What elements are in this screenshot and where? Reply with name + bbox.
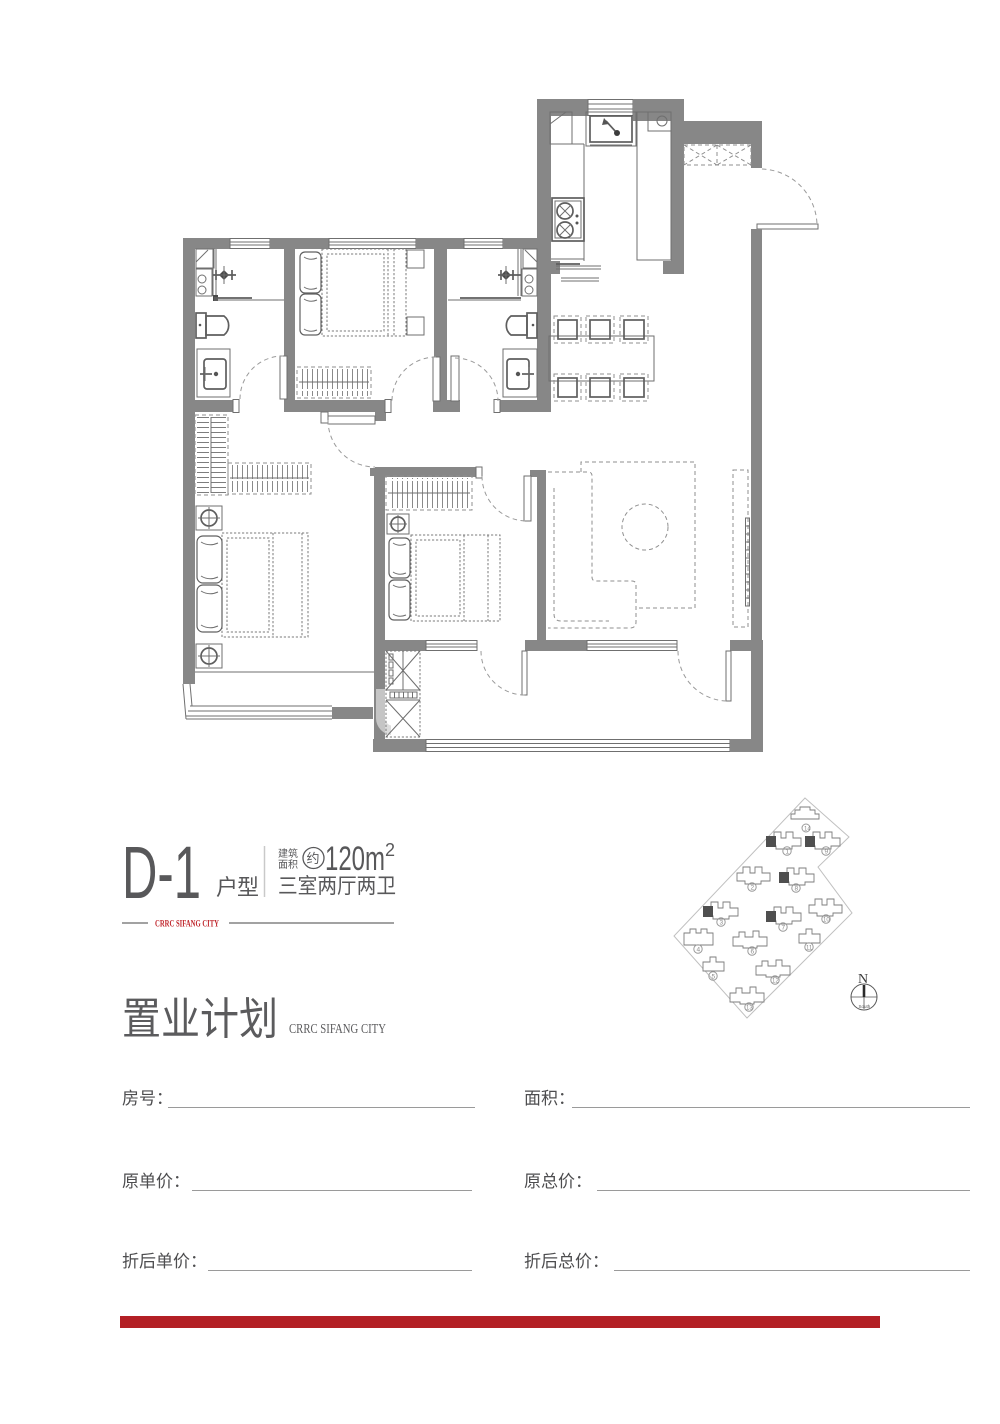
svg-text:120m: 120m xyxy=(325,840,385,878)
svg-text:D-1: D-1 xyxy=(122,831,201,914)
svg-text:1: 1 xyxy=(786,849,790,856)
svg-text:8: 8 xyxy=(795,886,799,893)
svg-text:折后单价：: 折后单价： xyxy=(122,1252,207,1271)
svg-text:原单价：: 原单价： xyxy=(122,1172,190,1191)
svg-text:面积：: 面积： xyxy=(524,1089,575,1108)
svg-text:原总价：: 原总价： xyxy=(524,1172,592,1191)
svg-text:5: 5 xyxy=(712,974,716,981)
svg-text:7: 7 xyxy=(782,925,786,932)
svg-text:房号：: 房号： xyxy=(122,1089,173,1108)
svg-text:10: 10 xyxy=(823,918,830,924)
svg-text:CRRC SIFANG CITY: CRRC SIFANG CITY xyxy=(155,920,219,930)
svg-text:14: 14 xyxy=(804,827,811,833)
svg-text:12: 12 xyxy=(772,979,779,985)
svg-text:三室两厅两卫: 三室两厅两卫 xyxy=(278,875,396,898)
svg-text:CRRC SIFANG CITY: CRRC SIFANG CITY xyxy=(289,1021,386,1036)
svg-text:6: 6 xyxy=(751,949,755,956)
svg-text:折后总价：: 折后总价： xyxy=(524,1252,609,1271)
svg-text:4: 4 xyxy=(697,947,701,954)
svg-text:面积: 面积 xyxy=(278,859,298,871)
svg-text:建筑: 建筑 xyxy=(278,847,298,860)
svg-text:South: South xyxy=(859,1004,871,1009)
svg-text:2: 2 xyxy=(385,840,395,860)
svg-text:13: 13 xyxy=(746,1006,753,1012)
svg-text:户型: 户型 xyxy=(216,875,258,900)
svg-text:置业计划: 置业计划 xyxy=(122,995,278,1044)
svg-text:9: 9 xyxy=(825,849,829,856)
svg-text:11: 11 xyxy=(806,946,813,952)
svg-text:3: 3 xyxy=(720,920,724,927)
svg-text:2: 2 xyxy=(751,885,755,892)
svg-text:约: 约 xyxy=(307,851,320,866)
